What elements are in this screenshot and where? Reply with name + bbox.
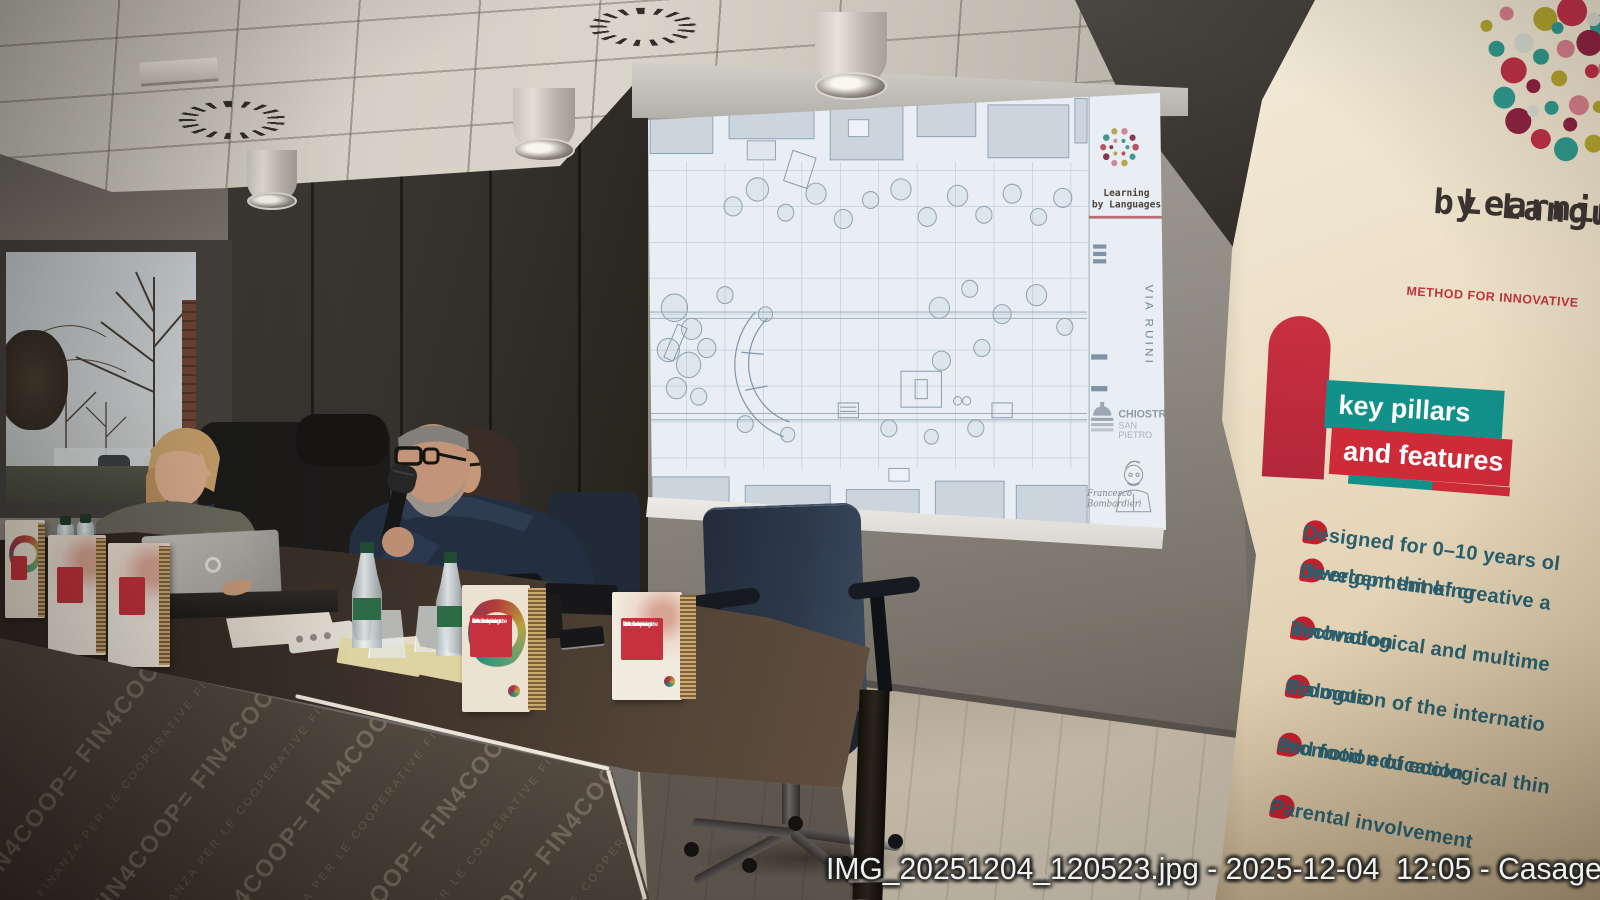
- book-title-block: We innovate and design for impact educat…: [621, 618, 663, 660]
- book-spine: [159, 546, 170, 665]
- bottle-cap: [360, 542, 374, 553]
- banner-logo-mosaic: [1406, 0, 1600, 204]
- book-display: We innovate and design for impact educat…: [612, 592, 696, 700]
- book-title-block: [11, 556, 27, 580]
- venue-name-1: CHIOSTRI: [1118, 409, 1169, 421]
- signature-line-2: Bombardieri: [1086, 499, 1142, 509]
- remote-button: [310, 634, 318, 642]
- bottle-cap: [444, 552, 457, 563]
- slide-logo-text-2: by Languages: [1092, 199, 1161, 210]
- slide-logo-tagline-bar: [1089, 216, 1166, 219]
- book-title-block: [119, 577, 145, 615]
- venue-name-3: PIETRO: [1118, 430, 1152, 440]
- bottle-label: [353, 598, 381, 620]
- book-display: We innovate and design for impact educat…: [462, 585, 546, 712]
- bottle-label: [437, 606, 464, 627]
- book-spine: [528, 588, 546, 710]
- book-spine: [680, 595, 696, 699]
- chair-caster: [888, 834, 903, 849]
- remote-button: [296, 635, 304, 643]
- book-spine: [96, 538, 106, 653]
- book-logo-dot: [664, 676, 675, 687]
- signature-line-1: Francesco: [1086, 489, 1132, 499]
- slide-logo-text-1: Learning: [1103, 187, 1149, 199]
- book-title-block: We innovate and design for impact educat…: [470, 615, 512, 657]
- book-title-block: [57, 567, 83, 603]
- downlight-face: [247, 192, 297, 210]
- book-spine: [38, 523, 45, 617]
- projection-screen: Learning by Languages VIA RUINI CHIOSTRI…: [636, 88, 1172, 553]
- timestamp-overlay: IMG_20251204_120523.jpg - 2025-12-04 12:…: [826, 851, 1600, 887]
- remote-button: [323, 632, 331, 640]
- downlight-face: [815, 72, 887, 100]
- book-display: [5, 520, 45, 618]
- book-logo-dot: [508, 685, 520, 697]
- hp-logo-icon: [205, 557, 222, 574]
- conference-room-photo: Learning by Languages VIA RUINI CHIOSTRI…: [0, 0, 1600, 900]
- downlight-face: [513, 138, 575, 162]
- street-label: VIA RUINI: [1143, 285, 1155, 366]
- site-plan-slide: Learning by Languages VIA RUINI CHIOSTRI…: [636, 88, 1172, 553]
- red-arch-graphic: [1262, 314, 1332, 479]
- book-display: [48, 535, 106, 655]
- book-display: [108, 543, 170, 667]
